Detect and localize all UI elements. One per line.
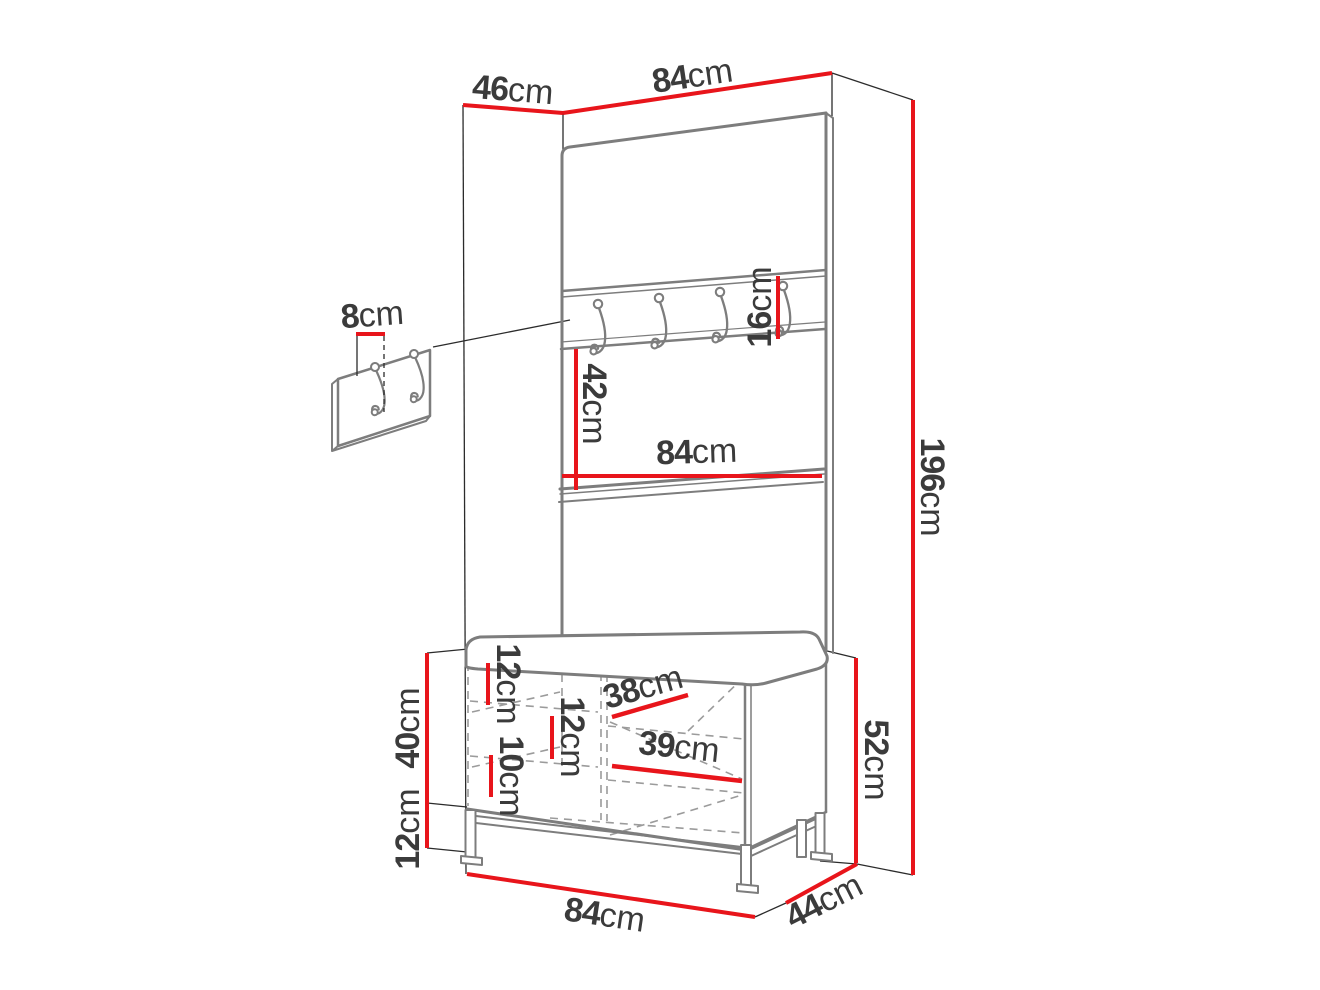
rear-left-leg [797,820,806,857]
front-right-leg [741,845,751,889]
front-stretcher-top [476,816,742,847]
front-left-leg [466,810,476,858]
coat-hook-icon [651,294,666,349]
rear-right-leg [816,813,825,857]
label-bench-depth: 44cm [779,866,869,937]
tick-floor-right [820,861,857,864]
shelf [559,469,824,502]
rear-right-foot [811,852,832,861]
tick-bench-top [427,649,468,653]
label-section-height: 42cm [575,363,613,444]
label-top-depth: 46cm [471,68,555,112]
dimension-lines [356,73,913,917]
hook-rail [561,270,826,354]
furniture-dimension-diagram: 46cm 84cm 196cm 16cm 42cm 84cm 8cm 12cm … [0,0,1320,990]
dim-line-inner-width-39 [612,766,742,781]
label-leg-height: 12cm [389,788,427,869]
front-left-foot [461,856,482,865]
label-inner-gap-bottom: 10cm [492,735,530,816]
label-inner-gap-middle: 12cm [553,696,591,777]
coat-hook-icon [712,288,727,343]
label-top-width: 84cm [649,51,735,101]
dimension-diagram-page: 46cm 84cm 196cm 16cm 42cm 84cm 8cm 12cm … [0,0,1320,990]
front-right-foot [737,884,758,893]
hook-plaque-leader-line [433,320,570,347]
cabinet-side-bottom-edge [745,812,826,850]
wireframe-back-depth-edge [832,73,913,100]
label-wall-hook-spacing: 8cm [339,294,405,336]
wireframe-left-vertical [463,105,466,874]
wireframe-bottom-right-connector [857,864,913,875]
side-stretcher-bottom [751,823,823,856]
right-depth-diagonal-3 [610,795,742,835]
tick-floor [427,848,467,852]
tick-leg-top [427,803,467,807]
label-total-height: 196cm [913,437,951,536]
label-shelf-width: 84cm [655,432,737,473]
label-bench-total-height: 52cm [857,719,895,800]
label-bench-body-height: 40cm [389,687,427,768]
wall-hook-plaque [332,336,430,451]
label-inner-gap-top: 12cm [489,643,527,724]
label-hook-rail-height: 16cm [741,266,779,347]
front-stretcher-bottom [476,823,742,854]
side-stretcher-top [751,817,820,849]
shelf-top-edge [560,469,824,489]
label-inner-width-lower: 39cm [637,724,722,770]
right-shelf-lower [608,780,744,793]
coat-hook-icon [590,300,605,355]
